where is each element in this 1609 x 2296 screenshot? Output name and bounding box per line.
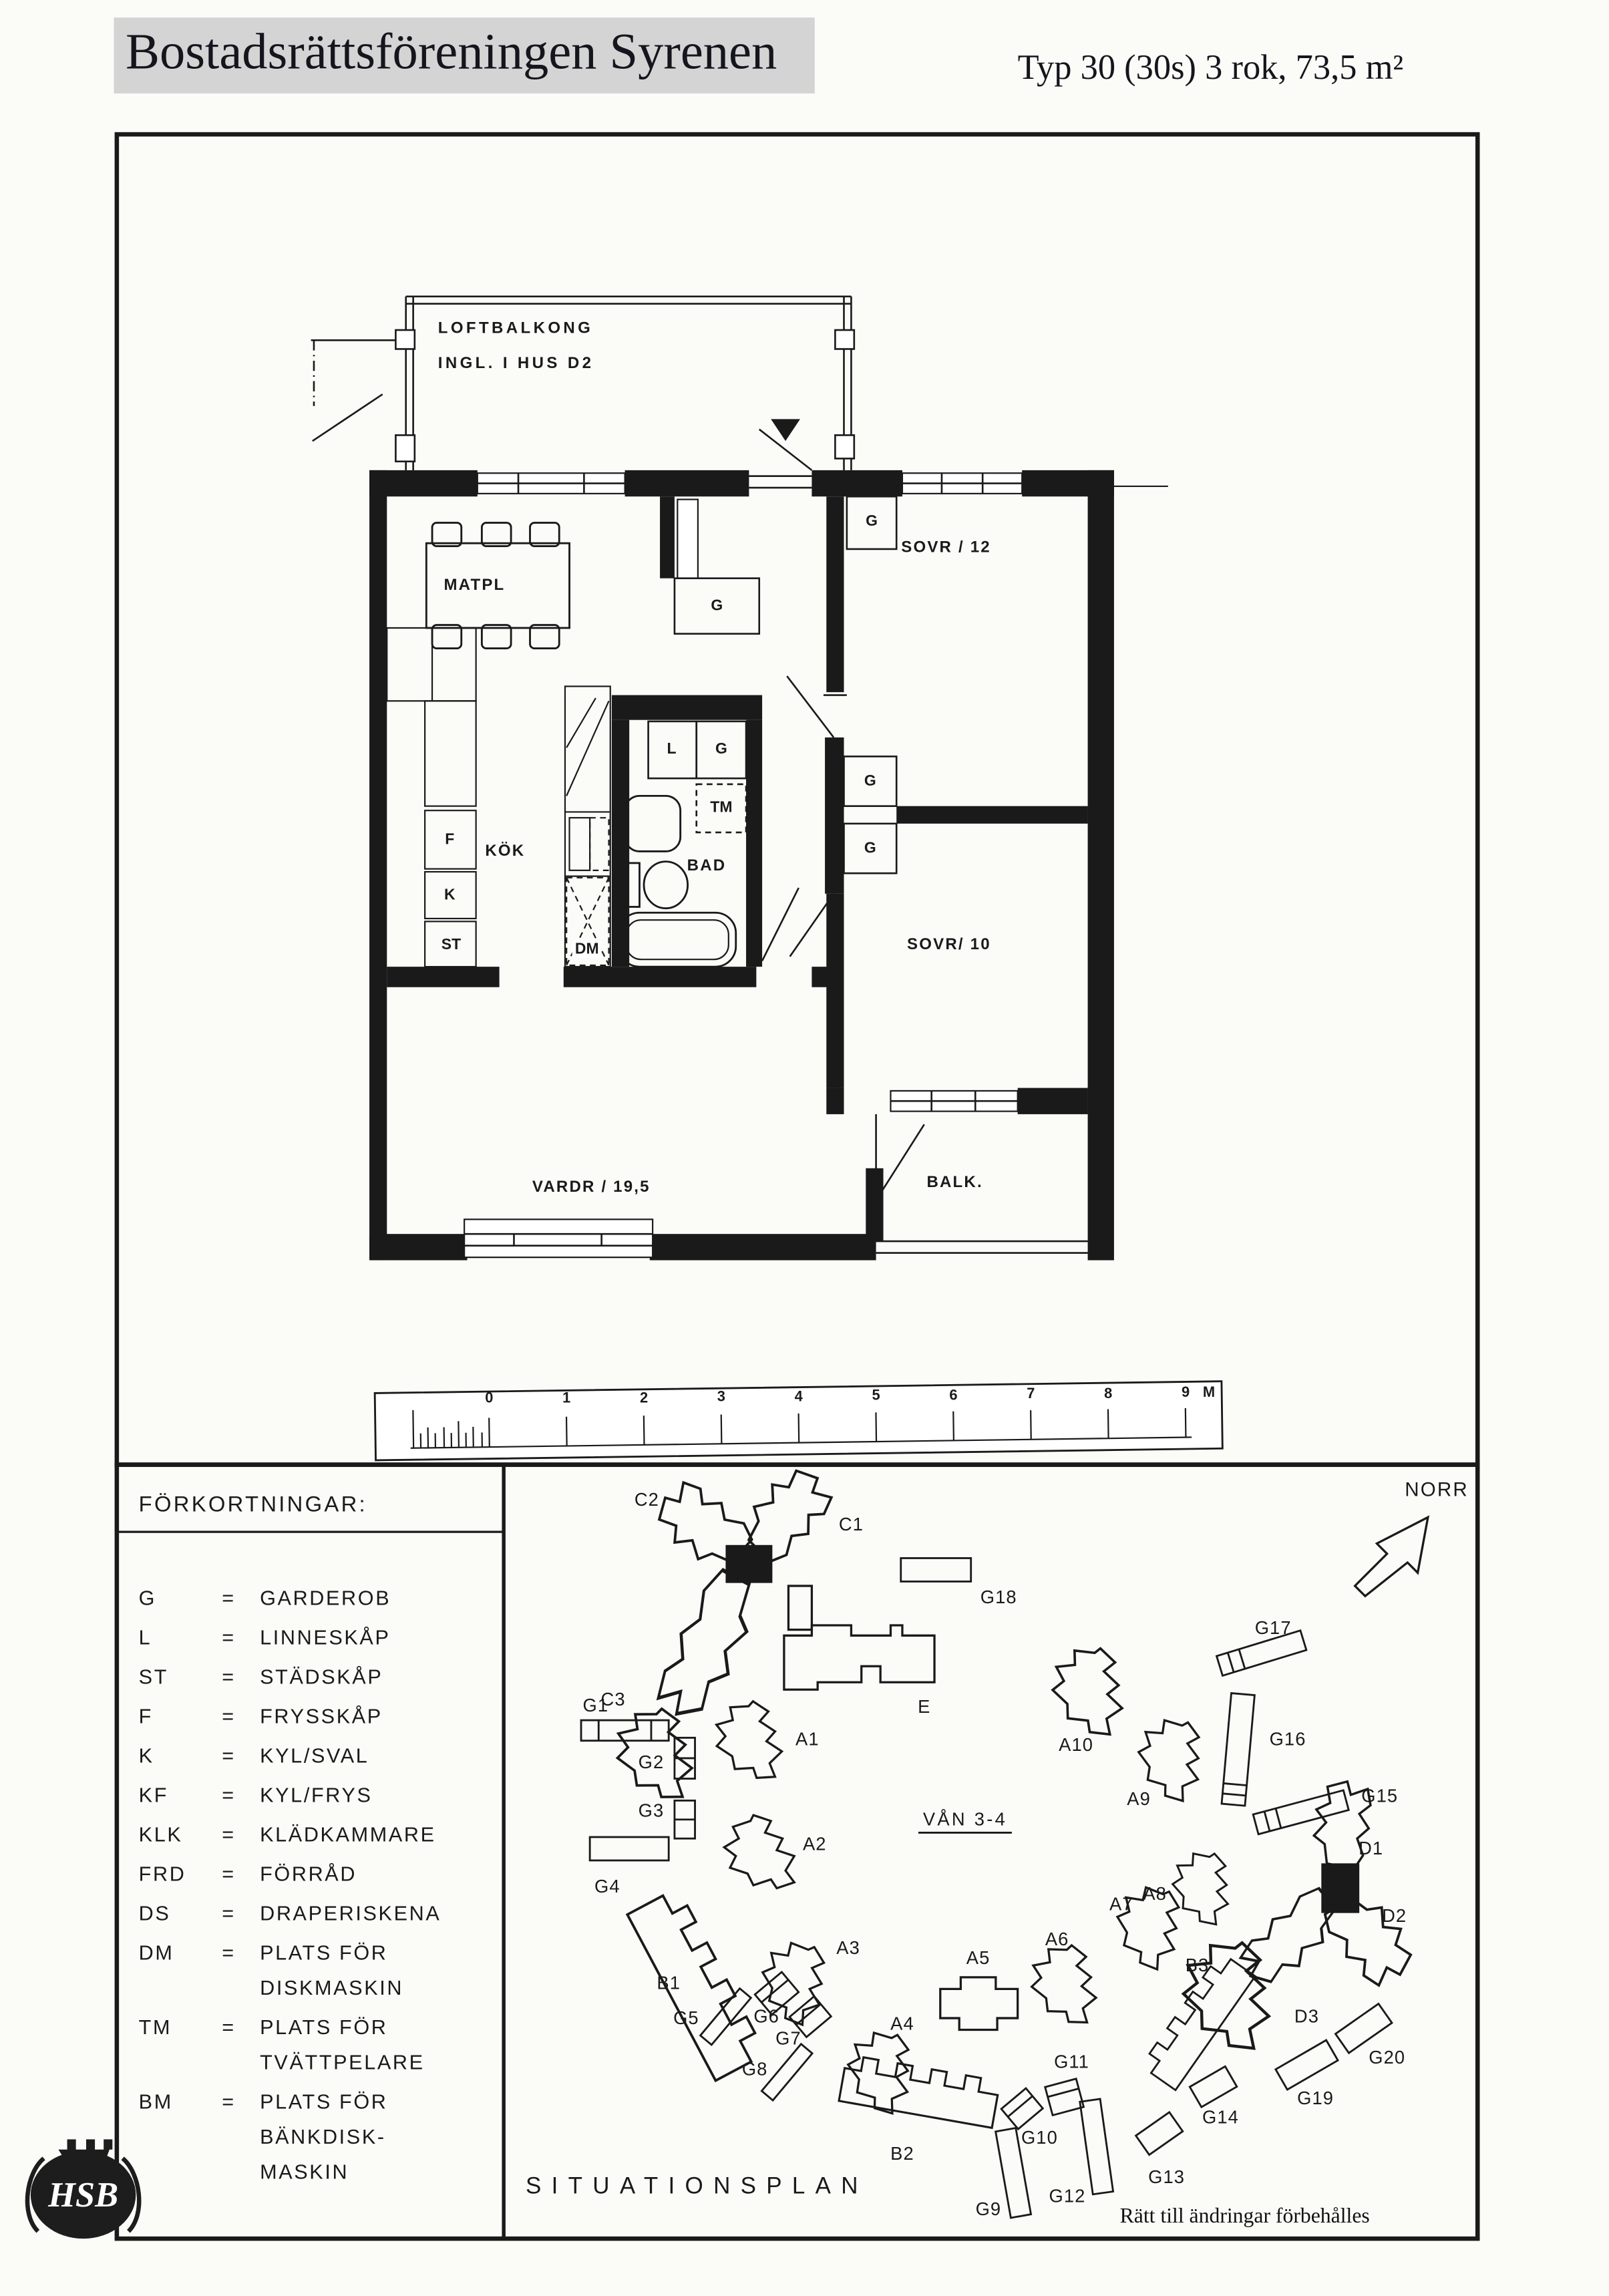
kitchen-fixtures: [387, 628, 610, 967]
hsb-logo-text: HSB: [47, 2176, 118, 2215]
legend-text: PLATS FÖR: [260, 2015, 387, 2039]
legend-row: G=GARDEROB: [139, 1586, 391, 1609]
legend-eq: =: [222, 2015, 260, 2039]
legend-eq: =: [222, 1704, 260, 1728]
closet-label-l: L: [667, 740, 677, 758]
legend-row: ST=STÄDSKÅP: [139, 1665, 383, 1688]
ruler-mark-0: 0: [485, 1391, 493, 1407]
site-building-label-d1: D1: [1359, 1838, 1383, 1859]
legend-row: L=LINNESKÅP: [139, 1625, 391, 1649]
legend-abbr: L: [139, 1625, 222, 1649]
legend-abbr: FRD: [139, 1862, 222, 1885]
closet-label-g-hall: G: [711, 597, 723, 615]
north-label: NORR: [1405, 1478, 1469, 1500]
site-building-label-g5: G5: [673, 2008, 699, 2029]
legend-text: BÄNKDISK-: [260, 2125, 386, 2148]
legend-abbr: [139, 2125, 222, 2148]
ruler-mark-1: 1: [562, 1391, 570, 1407]
site-building-label-g10: G10: [1021, 2128, 1058, 2148]
legend-row: BM=PLATS FÖR: [139, 2090, 388, 2113]
site-building-label-g15: G15: [1361, 1786, 1398, 1806]
hsb-logo: HSB: [27, 2139, 139, 2239]
legend-eq: =: [222, 2090, 260, 2113]
legend-row: DISKMASKIN: [139, 1976, 403, 1999]
site-building-label-d3: D3: [1294, 2007, 1319, 2027]
legend-abbr: K: [139, 1744, 222, 1767]
legend-eq: =: [222, 1862, 260, 1885]
legend-row: DS=DRAPERISKENA: [139, 1901, 441, 1925]
disclaimer-text: Rätt till ändringar förbehålles: [1120, 2205, 1370, 2230]
room-label-matpl: MATPL: [443, 577, 505, 594]
legend-abbr: [139, 1976, 222, 1999]
legend-abbr: [139, 2050, 222, 2074]
floor-plan-drawing: [311, 297, 1168, 1261]
buildings-g: [581, 1558, 1392, 2218]
legend-text: PLATS FÖR: [260, 1941, 387, 1964]
closet-label-g-sovr12: G: [866, 512, 878, 530]
legend-abbr: ST: [139, 1665, 222, 1688]
site-building-label-e: E: [918, 1697, 930, 1717]
ruler-mark-4: 4: [795, 1389, 803, 1406]
legend-text: FÖRRÅD: [260, 1862, 357, 1885]
legend-text: LINNESKÅP: [260, 1625, 390, 1649]
legend-eq: [222, 1976, 260, 1999]
legend-abbr: BM: [139, 2090, 222, 2113]
north-arrow-icon: [1355, 1517, 1428, 1596]
legend-eq: =: [222, 1625, 260, 1649]
ruler-mark-9: 9: [1182, 1385, 1190, 1401]
apartment-type-label: Typ 30 (30s) 3 rok, 73,5 m²: [1018, 49, 1403, 89]
legend-abbr: KF: [139, 1783, 222, 1806]
legend-abbr: F: [139, 1704, 222, 1728]
legend-row: FRD=FÖRRÅD: [139, 1862, 357, 1885]
legend-abbr: G: [139, 1586, 222, 1609]
room-label-sovr10: SOVR/ 10: [907, 936, 991, 953]
site-building-label-b1: B1: [657, 1973, 681, 1993]
site-building-label-a10: A10: [1059, 1735, 1093, 1756]
site-building-label-a9: A9: [1127, 1789, 1151, 1810]
site-building-label-g4: G4: [594, 1876, 620, 1897]
site-building-label-g13: G13: [1148, 2167, 1185, 2188]
balcony-note-line1: LOFTBALKONG: [438, 320, 593, 337]
site-building-label-a6: A6: [1045, 1929, 1069, 1950]
legend-abbr: DM: [139, 1941, 222, 1964]
closet-label-st: ST: [441, 936, 461, 953]
legend-row: KF=KYL/FRYS: [139, 1783, 373, 1806]
site-building-label-g12: G12: [1049, 2186, 1085, 2206]
legend-text: TVÄTTPELARE: [260, 2050, 425, 2074]
floor-note-label: VÅN 3-4: [923, 1809, 1007, 1830]
entrance-marker-icon: [771, 419, 800, 441]
closet-label-k: K: [444, 886, 456, 904]
closet-label-tm: TM: [710, 799, 732, 816]
site-building-label-g1: G1: [583, 1695, 609, 1716]
building-c-star: [604, 1459, 841, 1803]
ruler-mark-8: 8: [1104, 1387, 1112, 1403]
site-building-label-a2: A2: [803, 1834, 827, 1855]
site-building-label-d2: D2: [1382, 1906, 1407, 1927]
legend-eq: [222, 2160, 260, 2183]
legend-eq: =: [222, 1941, 260, 1964]
bathroom-fixtures: [619, 796, 736, 967]
site-building-label-g8: G8: [742, 2059, 768, 2080]
closet-label-dm: DM: [572, 941, 602, 958]
legend-row: DM=PLATS FÖR: [139, 1941, 388, 1964]
legend-eq: =: [222, 1783, 260, 1806]
legend-text: KLÄDKAMMARE: [260, 1822, 436, 1846]
site-building-label-g3: G3: [639, 1800, 665, 1821]
room-label-vardr: VARDR / 19,5: [532, 1178, 651, 1196]
balcony-note-line2: INGL. I HUS D2: [438, 355, 594, 372]
site-building-label-g16: G16: [1270, 1729, 1306, 1750]
legend-eq: =: [222, 1665, 260, 1688]
legend-text: KYL/FRYS: [260, 1783, 372, 1806]
room-label-kok: KÖK: [485, 842, 525, 860]
site-building-label-a1: A1: [795, 1729, 820, 1750]
closet-label-g-mid-upper: G: [864, 772, 876, 790]
site-building-label-a3: A3: [836, 1938, 860, 1959]
site-building-label-g18: G18: [980, 1587, 1017, 1608]
closets: [649, 496, 897, 873]
site-building-label-a5: A5: [966, 1948, 991, 1969]
site-building-label-a7: A7: [1109, 1894, 1133, 1915]
site-building-label-g17: G17: [1255, 1618, 1292, 1639]
site-building-label-b3: B3: [1186, 1955, 1210, 1976]
siteplan-title: SITUATIONSPLAN: [526, 2174, 868, 2200]
site-building-label-c2: C2: [635, 1490, 659, 1510]
ruler-mark-6: 6: [949, 1388, 957, 1404]
legend-row: KLK=KLÄDKAMMARE: [139, 1822, 436, 1846]
legend-eq: [222, 2125, 260, 2148]
legend-abbr: DS: [139, 1901, 222, 1925]
windows: [464, 473, 1022, 1257]
closet-label-g-mid-lower: G: [864, 840, 876, 857]
legend-eq: =: [222, 1822, 260, 1846]
room-label-balk: BALK.: [926, 1174, 982, 1192]
page-title: Bostadsrättsföreningen Syrenen: [114, 17, 816, 93]
ruler-unit: M: [1203, 1385, 1215, 1401]
document-page: HSB Bostadsrättsföreningen Syrenen Typ 3…: [0, 0, 1609, 2295]
closet-label-f: F: [445, 831, 454, 848]
legend-text: STÄDSKÅP: [260, 1665, 383, 1688]
legend-row: K=KYL/SVAL: [139, 1744, 369, 1767]
legend-text: FRYSSKÅP: [260, 1704, 383, 1728]
ruler-mark-5: 5: [872, 1388, 880, 1404]
site-building-label-g11: G11: [1054, 2052, 1089, 2072]
site-building-label-c1: C1: [839, 1514, 864, 1535]
legend-text: MASKIN: [260, 2160, 349, 2183]
legend-row: F=FRYSSKÅP: [139, 1704, 383, 1728]
site-building-label-g14: G14: [1202, 2107, 1239, 2128]
legend-abbr: TM: [139, 2015, 222, 2039]
site-building-label-g6: G6: [753, 2007, 779, 2027]
site-building-label-b2: B2: [890, 2144, 914, 2164]
building-e: [784, 1625, 934, 1689]
legend-text: GARDEROB: [260, 1586, 391, 1609]
legend-row: MASKIN: [139, 2160, 349, 2183]
legend-title: FÖRKORTNINGAR:: [139, 1492, 367, 1517]
site-building-label-a8: A8: [1143, 1884, 1167, 1905]
site-building-label-g9: G9: [976, 2199, 1002, 2220]
site-building-label-g20: G20: [1369, 2047, 1405, 2068]
legend-row: TVÄTTPELARE: [139, 2050, 425, 2074]
room-label-sovr12: SOVR / 12: [901, 539, 991, 556]
legend-row: TM=PLATS FÖR: [139, 2015, 388, 2039]
legend-eq: =: [222, 1586, 260, 1609]
ruler-mark-2: 2: [640, 1391, 648, 1407]
site-building-label-g7: G7: [775, 2028, 801, 2049]
site-building-label-g2: G2: [639, 1752, 665, 1773]
legend-text: DISKMASKIN: [260, 1976, 403, 1999]
legend-row: BÄNKDISK-: [139, 2125, 386, 2148]
legend-abbr: [139, 2160, 222, 2183]
legend-eq: =: [222, 1901, 260, 1925]
closet-label-g-hall2: G: [715, 740, 727, 758]
legend-text: PLATS FÖR: [260, 2090, 387, 2113]
room-label-bad: BAD: [687, 857, 727, 874]
legend-eq: =: [222, 1744, 260, 1767]
legend-eq: [222, 2050, 260, 2074]
legend-text: KYL/SVAL: [260, 1744, 369, 1767]
legend-abbr: KLK: [139, 1822, 222, 1846]
site-building-label-g19: G19: [1297, 2088, 1334, 2109]
site-building-label-a4: A4: [890, 2013, 914, 2034]
ruler-mark-3: 3: [717, 1389, 725, 1406]
ruler-mark-7: 7: [1027, 1387, 1035, 1403]
legend-text: DRAPERISKENA: [260, 1901, 441, 1925]
